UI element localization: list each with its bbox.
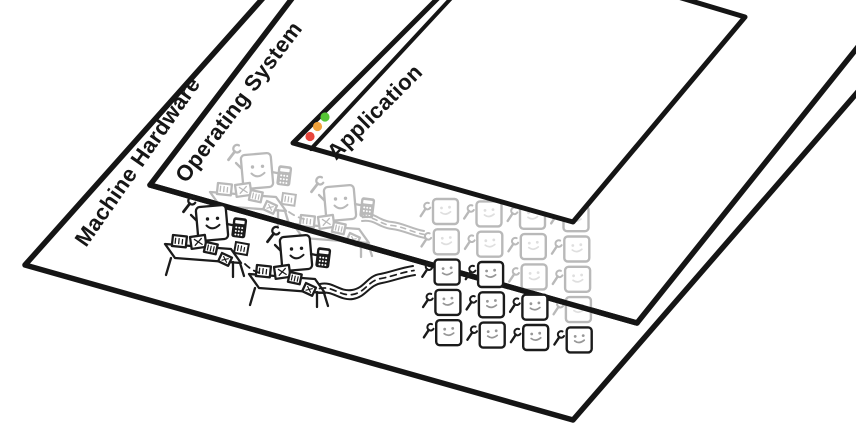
layers-diagram: Machine Hardware Operating System [0, 0, 856, 446]
package-box [234, 242, 249, 255]
window-control-close-icon [305, 132, 314, 141]
faded-package-box [281, 193, 295, 206]
layers-illustration: Machine Hardware Operating System [0, 0, 856, 446]
window-control-maximize-icon [320, 112, 329, 121]
window-control-minimize-icon [313, 122, 322, 131]
